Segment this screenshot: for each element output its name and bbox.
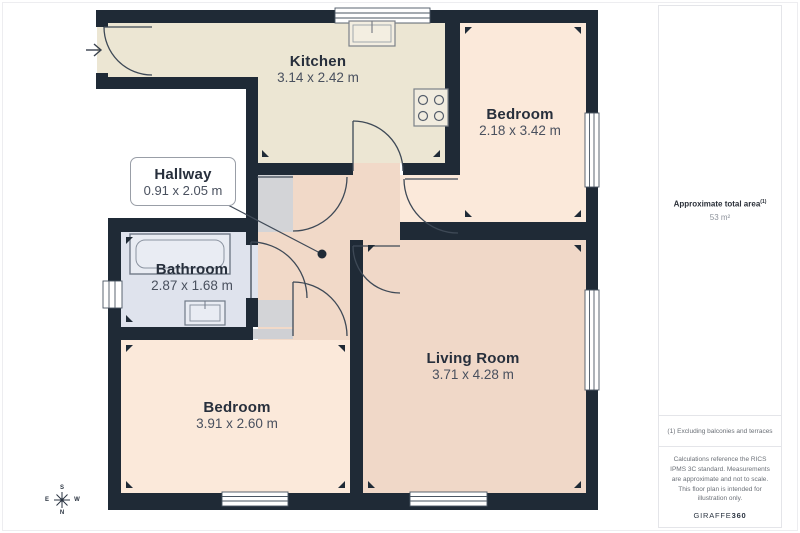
info-sidebar: Approximate total area(1) 53 m² (1) Excl… bbox=[658, 5, 782, 528]
bedroom-bottom-window bbox=[222, 492, 288, 506]
compass-west: W bbox=[74, 497, 80, 503]
compass-north: N bbox=[60, 510, 64, 516]
giraffe360-logo: GIRAFFE360 bbox=[693, 511, 746, 520]
living-room-side-window bbox=[585, 290, 599, 390]
total-area-value: 53 m² bbox=[710, 213, 730, 222]
brand-suffix: 360 bbox=[732, 511, 747, 520]
bedroom-bottom-dims: 3.91 x 2.60 m bbox=[196, 416, 278, 431]
living-room-dims: 3.71 x 4.28 m bbox=[426, 367, 519, 382]
corridor-floor bbox=[97, 22, 258, 77]
disclaimer-section: Calculations reference the RICS IPMS 3C … bbox=[659, 446, 781, 527]
bedroom-top-vestibule-floor bbox=[400, 175, 460, 226]
bedroom-bottom-threshold bbox=[253, 329, 293, 339]
room-label-bathroom: Bathroom 2.87 x 1.68 m bbox=[151, 261, 233, 293]
compass-east: E bbox=[45, 497, 49, 503]
room-label-bedroom-top: Bedroom 2.18 x 3.42 m bbox=[479, 106, 561, 138]
footnote-text: (1) Excluding balconies and terraces bbox=[661, 428, 778, 435]
floorplan-page: Kitchen 3.14 x 2.42 m Bedroom 2.18 x 3.4… bbox=[0, 0, 800, 533]
bedroom-top-dims: 2.18 x 3.42 m bbox=[479, 123, 561, 138]
room-label-hallway: Hallway 0.91 x 2.05 m bbox=[130, 157, 236, 206]
kitchen-name: Kitchen bbox=[277, 53, 359, 70]
room-label-kitchen: Kitchen 3.14 x 2.42 m bbox=[277, 53, 359, 85]
hallway-point-dot bbox=[318, 250, 327, 259]
bedroom-top-name: Bedroom bbox=[479, 106, 561, 123]
disclaimer-text: Calculations reference the RICS IPMS 3C … bbox=[669, 455, 771, 504]
bathroom-name: Bathroom bbox=[151, 261, 233, 278]
total-area-superscript: (1) bbox=[760, 199, 766, 205]
kitchen-dims: 3.14 x 2.42 m bbox=[277, 70, 359, 85]
living-room-name: Living Room bbox=[426, 350, 519, 367]
compass-south: S bbox=[60, 485, 64, 491]
total-area-label-text: Approximate total area bbox=[674, 199, 761, 208]
hallway-lobby-step bbox=[255, 300, 293, 327]
bedroom-bottom-name: Bedroom bbox=[196, 399, 278, 416]
room-label-bedroom-bottom: Bedroom 3.91 x 2.60 m bbox=[196, 399, 278, 431]
living-room-bottom-window bbox=[410, 492, 487, 506]
bedroom-top-window bbox=[585, 113, 599, 187]
room-label-living-room: Living Room 3.71 x 4.28 m bbox=[426, 350, 519, 382]
kitchen-sink bbox=[349, 21, 395, 46]
hallway-name: Hallway bbox=[154, 166, 211, 183]
total-area-label: Approximate total area(1) bbox=[674, 199, 767, 209]
footnote-section: (1) Excluding balconies and terraces bbox=[659, 415, 781, 446]
compass-icon bbox=[54, 492, 70, 508]
total-area-section: Approximate total area(1) 53 m² bbox=[659, 6, 781, 415]
bathroom-window bbox=[103, 281, 122, 308]
hallway-dims: 0.91 x 2.05 m bbox=[144, 183, 223, 198]
bathroom-sink bbox=[185, 301, 225, 325]
stove bbox=[414, 89, 448, 126]
brand-name: GIRAFFE bbox=[693, 511, 731, 520]
bathroom-dims: 2.87 x 1.68 m bbox=[151, 278, 233, 293]
